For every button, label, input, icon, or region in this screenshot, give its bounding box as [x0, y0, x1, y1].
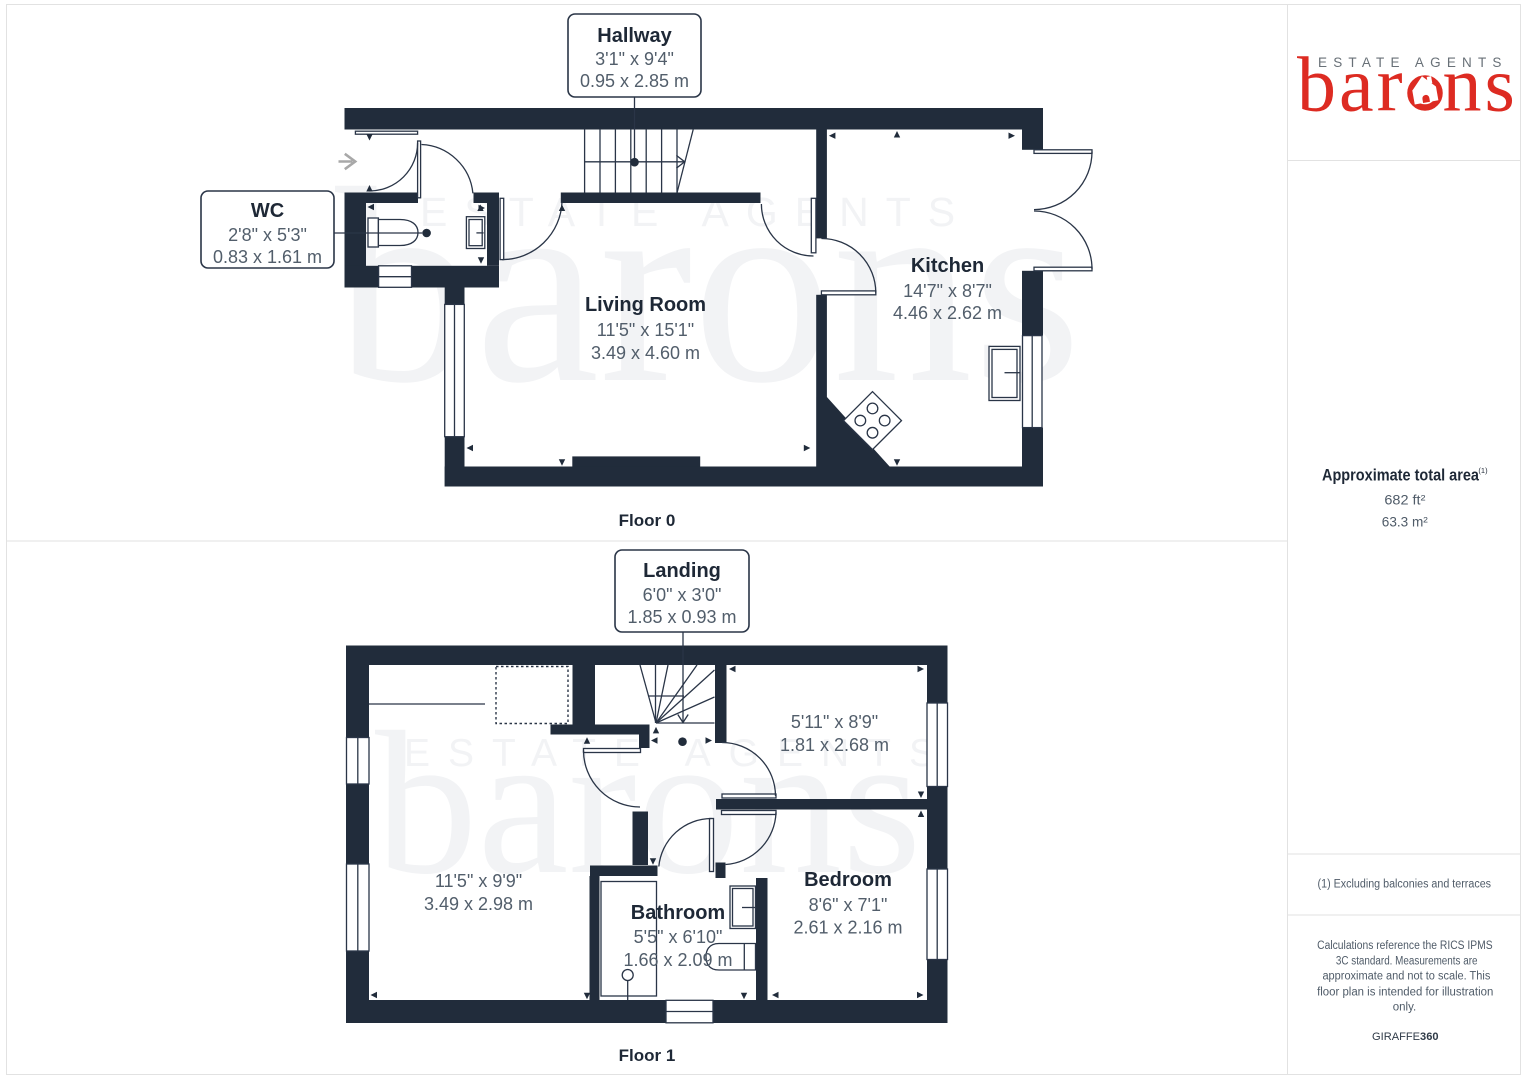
- svg-text:1.81 x 2.68 m: 1.81 x 2.68 m: [780, 735, 889, 755]
- svg-text:only.: only.: [1393, 1002, 1416, 1014]
- svg-text:bar: bar: [1297, 41, 1406, 128]
- svg-text:Approximate total area: Approximate total area: [1322, 466, 1479, 485]
- svg-text:Floor 0: Floor 0: [619, 511, 676, 530]
- svg-text:Calculations reference the RIC: Calculations reference the RICS IPMS: [1317, 940, 1493, 952]
- svg-text:3.49 x 4.60 m: 3.49 x 4.60 m: [591, 343, 700, 363]
- svg-text:approximate and not to scale.: approximate and not to scale. This: [1322, 971, 1490, 983]
- svg-text:floor plan is intended for ill: floor plan is intended for illustration: [1317, 987, 1493, 999]
- svg-text:1.66 x 2.09 m: 1.66 x 2.09 m: [623, 950, 732, 970]
- svg-text:3'1" x 9'4": 3'1" x 9'4": [595, 49, 674, 69]
- svg-text:Kitchen: Kitchen: [911, 255, 984, 277]
- svg-text:3C standard. Measurements are: 3C standard. Measurements are: [1336, 956, 1478, 968]
- svg-text:0.95 x 2.85 m: 0.95 x 2.85 m: [580, 71, 689, 91]
- svg-text:2.61 x 2.16 m: 2.61 x 2.16 m: [793, 918, 902, 938]
- svg-text:Landing: Landing: [643, 560, 721, 582]
- svg-text:WC: WC: [251, 200, 284, 222]
- svg-text:0.83 x 1.61 m: 0.83 x 1.61 m: [213, 247, 322, 267]
- svg-text:4.46 x 2.62 m: 4.46 x 2.62 m: [893, 303, 1002, 323]
- svg-text:6'0" x 3'0": 6'0" x 3'0": [643, 585, 722, 605]
- svg-text:5'11" x 8'9": 5'11" x 8'9": [791, 712, 878, 732]
- svg-text:(1) Excluding balconies and te: (1) Excluding balconies and terraces: [1318, 878, 1492, 890]
- svg-text:63.3 m²: 63.3 m²: [1382, 514, 1428, 529]
- svg-text:11'5" x 15'1": 11'5" x 15'1": [597, 320, 694, 340]
- svg-text:5'5" x 6'10": 5'5" x 6'10": [634, 927, 723, 947]
- svg-text:Living Room: Living Room: [585, 294, 706, 316]
- svg-text:Bathroom: Bathroom: [631, 902, 725, 924]
- svg-text:3.49 x 2.98 m: 3.49 x 2.98 m: [424, 894, 533, 914]
- svg-text:ns: ns: [1443, 41, 1518, 128]
- svg-text:11'5" x 9'9": 11'5" x 9'9": [435, 871, 522, 891]
- svg-text:2'8" x 5'3": 2'8" x 5'3": [228, 225, 307, 245]
- svg-text:Hallway: Hallway: [597, 25, 672, 47]
- svg-text:682 ft²: 682 ft²: [1384, 493, 1426, 508]
- svg-text:(1): (1): [1478, 466, 1488, 475]
- svg-text:1.85 x 0.93 m: 1.85 x 0.93 m: [627, 607, 736, 627]
- svg-text:14'7" x 8'7": 14'7" x 8'7": [903, 281, 992, 301]
- svg-text:8'6" x 7'1": 8'6" x 7'1": [809, 895, 888, 915]
- svg-text:Floor 1: Floor 1: [619, 1046, 676, 1065]
- svg-text:GIRAFFE360: GIRAFFE360: [1372, 1031, 1439, 1043]
- svg-text:Bedroom: Bedroom: [804, 869, 892, 891]
